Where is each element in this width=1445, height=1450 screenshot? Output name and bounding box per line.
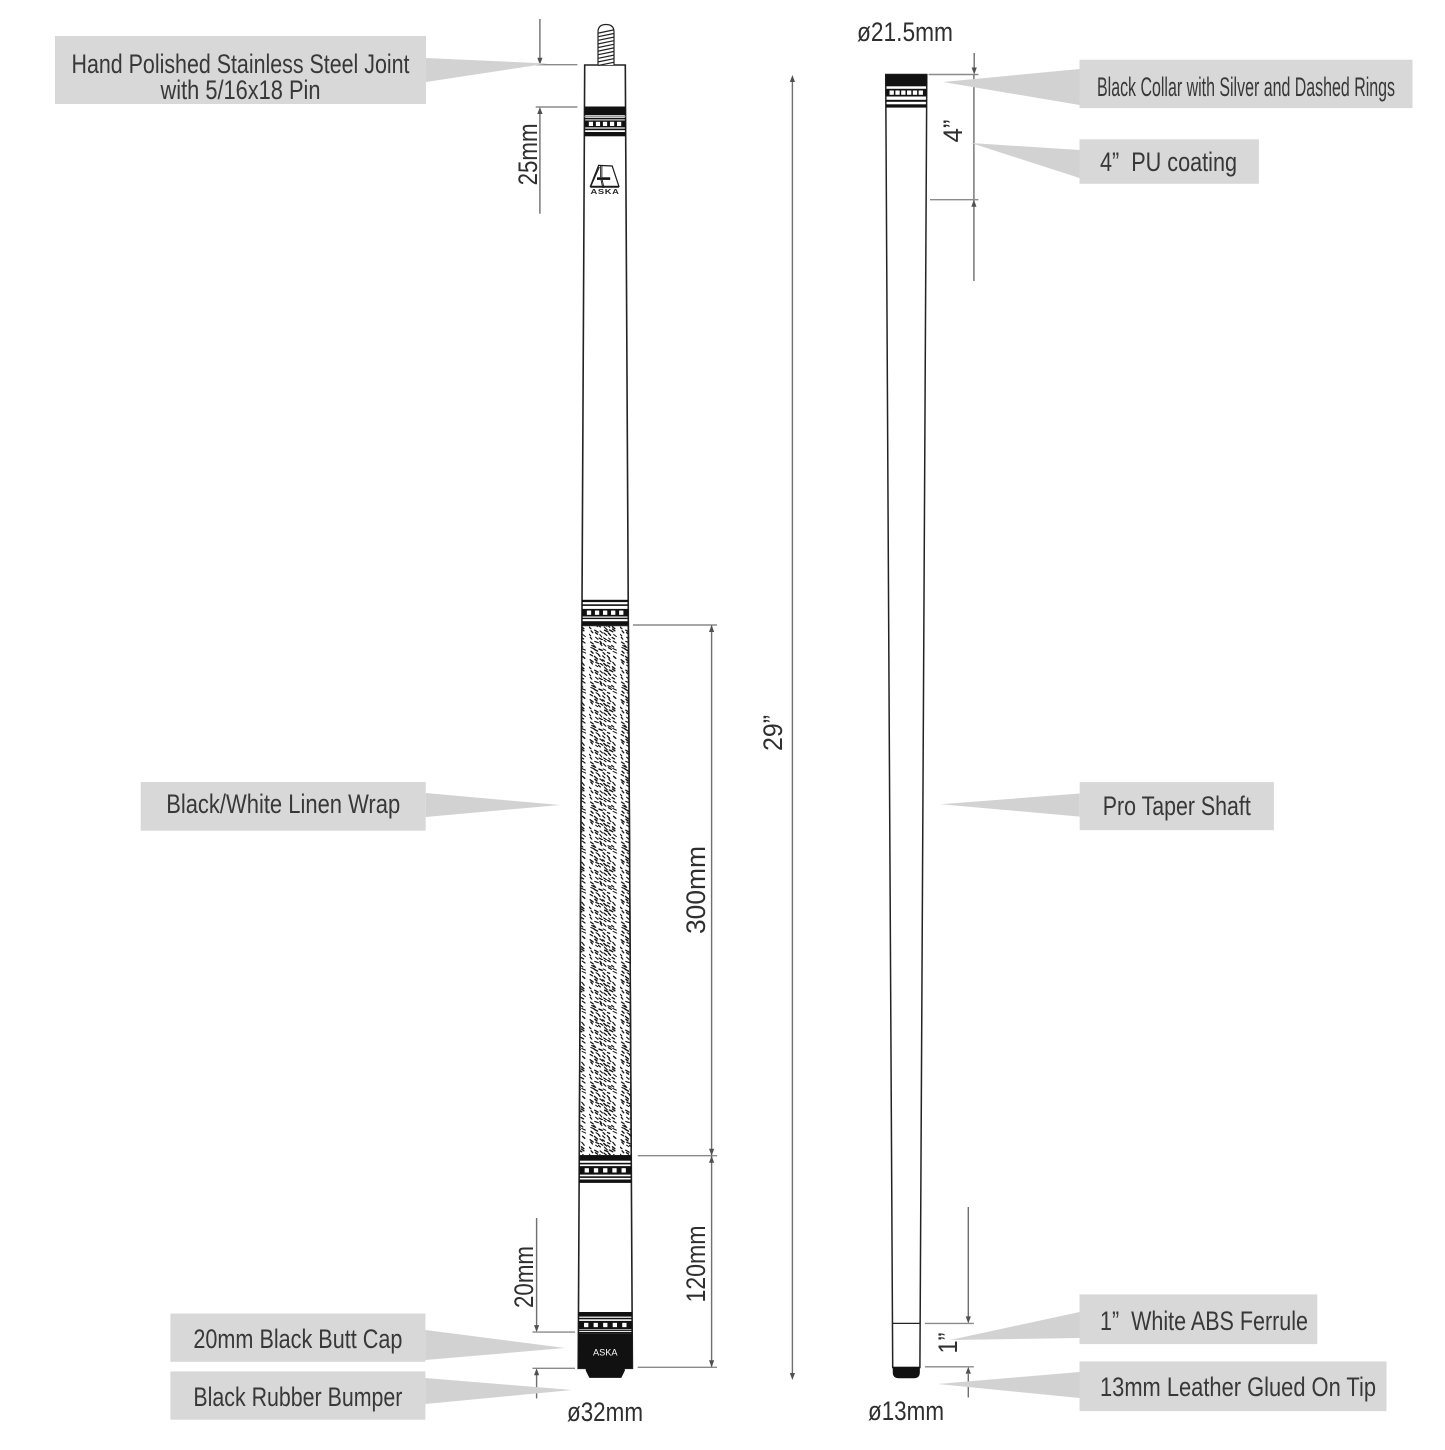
svg-text:ø13mm: ø13mm	[868, 1396, 944, 1426]
svg-text:Black Rubber Bumper: Black Rubber Bumper	[193, 1382, 402, 1412]
svg-text:300mm: 300mm	[681, 846, 711, 934]
svg-text:29”: 29”	[758, 715, 788, 751]
svg-text:4”: 4”	[938, 120, 968, 143]
svg-text:Black Collar with Silver and D: Black Collar with Silver and Dashed Ring…	[1097, 72, 1395, 102]
svg-text:25mm: 25mm	[513, 123, 543, 185]
svg-text:ø32mm: ø32mm	[567, 1397, 643, 1427]
svg-text:ASKA: ASKA	[591, 187, 620, 196]
svg-text:20mm Black Butt Cap: 20mm Black Butt Cap	[193, 1324, 402, 1354]
svg-text:20mm: 20mm	[509, 1246, 539, 1308]
svg-text:with 5/16x18 Pin: with 5/16x18 Pin	[160, 75, 321, 105]
svg-text:1” White ABS Ferrule: 1” White ABS Ferrule	[1100, 1306, 1308, 1336]
svg-text:Pro Taper Shaft: Pro Taper Shaft	[1103, 791, 1251, 821]
svg-text:ø21.5mm: ø21.5mm	[857, 17, 953, 47]
svg-text:13mm Leather Glued On Tip: 13mm Leather Glued On Tip	[1100, 1372, 1376, 1402]
svg-text:4” PU coating: 4” PU coating	[1100, 147, 1237, 177]
svg-text:ASKA: ASKA	[593, 1348, 618, 1358]
svg-text:120mm: 120mm	[681, 1226, 711, 1303]
svg-text:Black/White Linen Wrap: Black/White Linen Wrap	[166, 789, 400, 819]
svg-text:1”: 1”	[933, 1333, 963, 1354]
